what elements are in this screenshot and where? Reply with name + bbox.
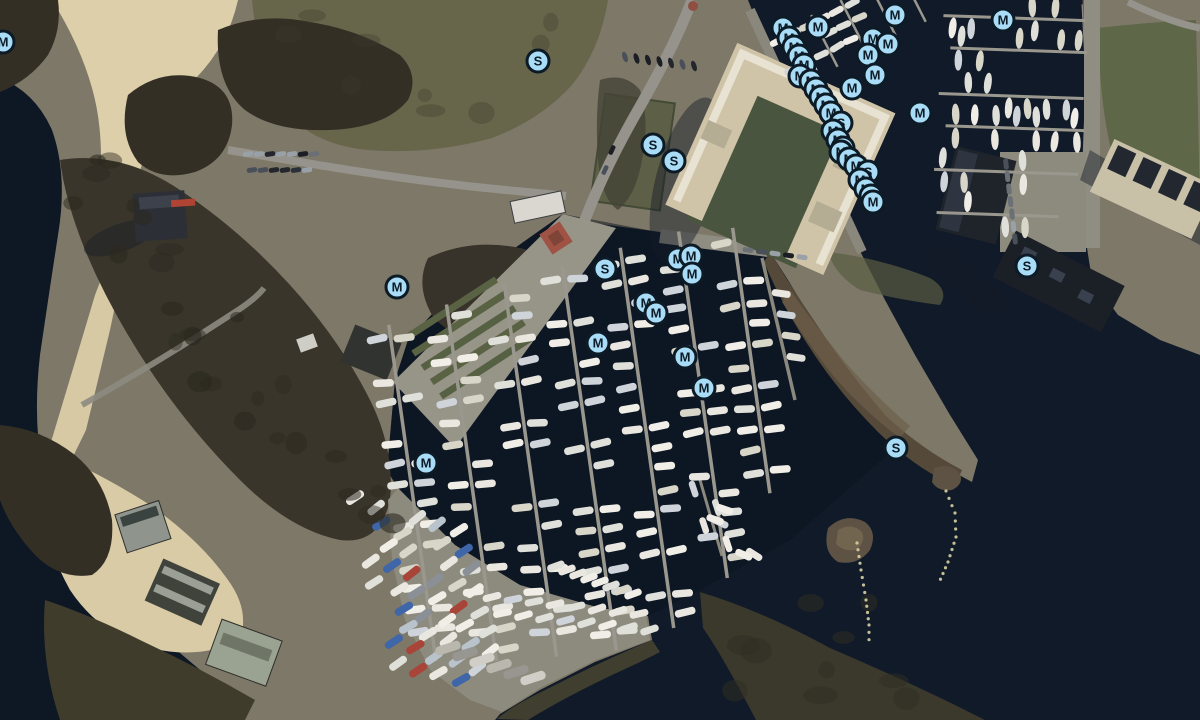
map-marker-s[interactable]: S: [1015, 254, 1040, 279]
map-canvas[interactable]: Aerial satellite view of a marina harbou…: [0, 0, 1200, 720]
map-marker-m[interactable]: M: [840, 76, 865, 101]
map-marker-s[interactable]: S: [526, 49, 551, 74]
map-marker-m[interactable]: M: [861, 190, 886, 215]
marker-layer: MSSSMSMMMMSSMMMMMMMMMMMMMMMMMMMMMMMMMSMM…: [0, 0, 1200, 720]
map-marker-s[interactable]: S: [662, 149, 687, 174]
map-marker-s[interactable]: S: [593, 257, 618, 282]
map-marker-m[interactable]: M: [385, 275, 410, 300]
map-marker-m[interactable]: M: [414, 451, 439, 476]
map-marker-m[interactable]: M: [991, 8, 1016, 33]
map-marker-m[interactable]: M: [586, 331, 611, 356]
map-marker-s[interactable]: S: [641, 133, 666, 158]
map-marker-m[interactable]: M: [908, 101, 933, 126]
map-marker-m[interactable]: M: [0, 30, 16, 55]
map-marker-m[interactable]: M: [883, 3, 908, 28]
map-marker-m[interactable]: M: [644, 301, 669, 326]
map-marker-m[interactable]: M: [863, 63, 888, 88]
map-marker-s[interactable]: S: [884, 436, 909, 461]
map-marker-m[interactable]: M: [680, 262, 705, 287]
map-marker-m[interactable]: M: [692, 376, 717, 401]
map-marker-m[interactable]: M: [673, 345, 698, 370]
map-marker-m[interactable]: M: [806, 15, 831, 40]
